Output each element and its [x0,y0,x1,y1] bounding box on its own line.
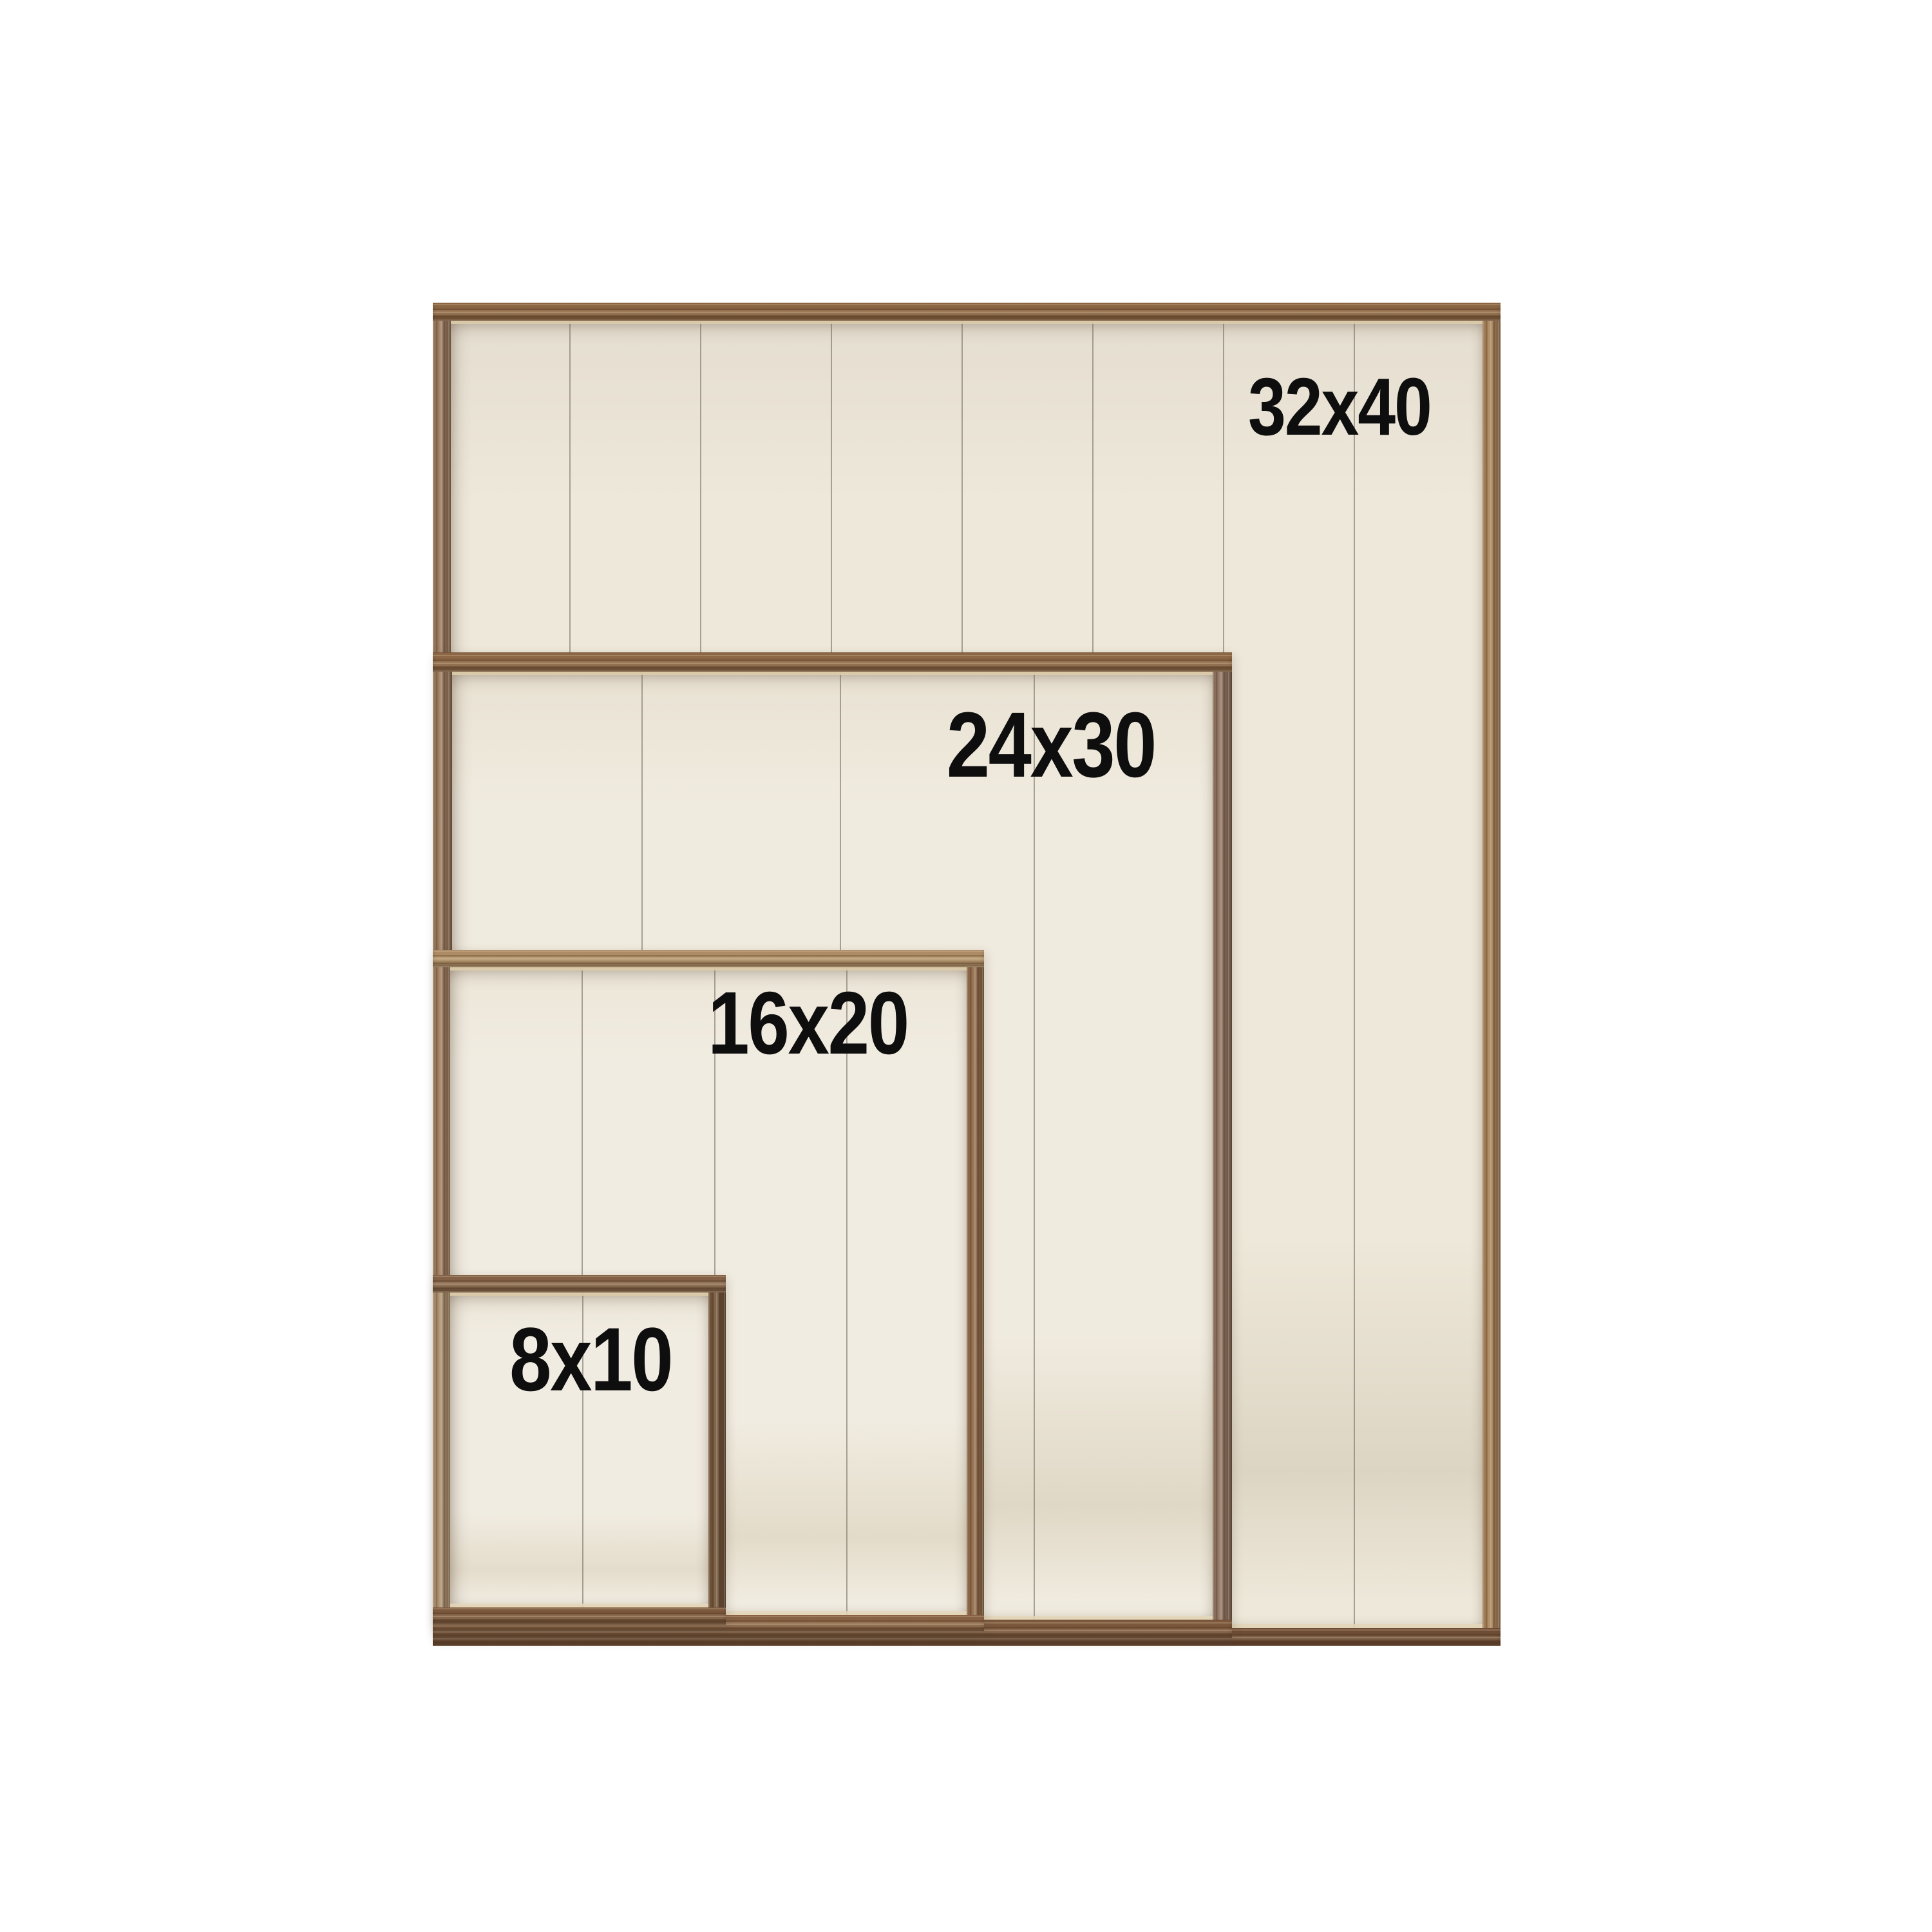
frame-bar-top [433,950,984,967]
rabbet-highlight-top [450,1293,708,1296]
frame-bar-top [433,652,1232,672]
frame-bar-bottom [433,1607,726,1625]
size-label-32x40: 32x40 [1248,366,1431,448]
rabbet-highlight-top [450,967,967,971]
plank-seam [1034,672,1035,1620]
plank-seam [1354,321,1355,1628]
frame-bar-top [433,303,1501,321]
size-label-8x10: 8x10 [509,1314,672,1405]
rabbet-highlight-top [452,672,1213,675]
frame-bar-right [967,950,984,1633]
rabbet-highlight-top [451,321,1482,324]
size-label-16x20: 16x20 [708,979,908,1068]
frame-bar-right [708,1275,726,1625]
frame-bar-right [1213,652,1232,1639]
frame-8x10: 8x10 [433,1275,726,1625]
size-label-24x30: 24x30 [947,699,1155,791]
frame-size-comparison-diagram: 32x4024x3016x208x10 [0,0,1932,1932]
frame-bar-top [433,1275,726,1293]
frame-bar-left [433,1275,450,1625]
frame-bar-right [1482,303,1501,1646]
